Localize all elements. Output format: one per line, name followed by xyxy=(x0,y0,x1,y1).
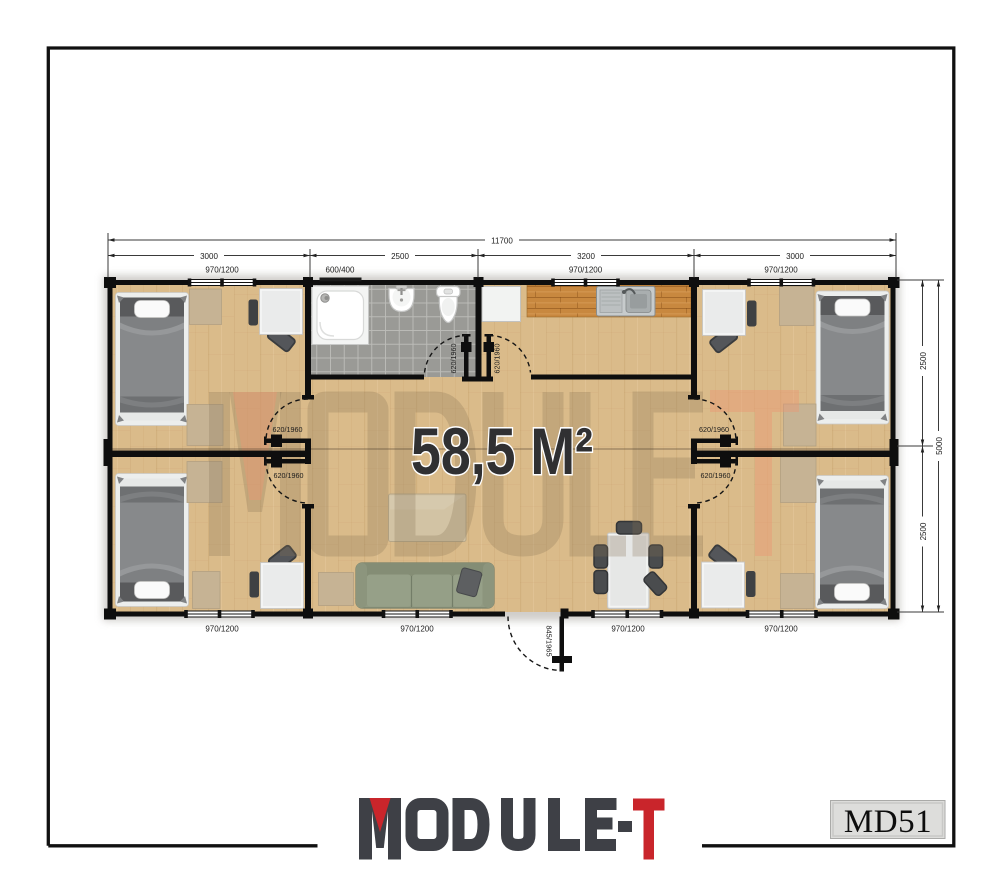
svg-text:2500: 2500 xyxy=(919,522,928,540)
svg-text:970/1200: 970/1200 xyxy=(205,625,239,634)
svg-text:970/1200: 970/1200 xyxy=(400,625,434,634)
svg-text:620/1960: 620/1960 xyxy=(273,425,303,434)
svg-text:11700: 11700 xyxy=(491,237,513,246)
svg-text:3200: 3200 xyxy=(577,252,595,261)
svg-text:600/400: 600/400 xyxy=(326,266,355,275)
svg-text:58,5 M²: 58,5 M² xyxy=(411,414,593,488)
svg-text:5000: 5000 xyxy=(935,437,944,455)
svg-text:620/1960: 620/1960 xyxy=(699,425,729,434)
svg-text:2500: 2500 xyxy=(391,252,409,261)
svg-text:970/1200: 970/1200 xyxy=(205,266,239,275)
svg-text:970/1200: 970/1200 xyxy=(611,625,645,634)
svg-text:970/1200: 970/1200 xyxy=(764,625,798,634)
svg-text:845/1965: 845/1965 xyxy=(545,625,554,656)
svg-text:3000: 3000 xyxy=(200,252,218,261)
svg-text:620/1960: 620/1960 xyxy=(701,471,731,480)
svg-text:MD51: MD51 xyxy=(844,804,932,840)
svg-text:2500: 2500 xyxy=(919,352,928,370)
svg-text:620/1960: 620/1960 xyxy=(274,471,304,480)
svg-text:620/1960: 620/1960 xyxy=(449,344,458,374)
svg-text:970/1200: 970/1200 xyxy=(764,266,798,275)
svg-text:3000: 3000 xyxy=(786,252,804,261)
svg-text:970/1200: 970/1200 xyxy=(569,266,603,275)
svg-text:620/1960: 620/1960 xyxy=(493,344,502,374)
